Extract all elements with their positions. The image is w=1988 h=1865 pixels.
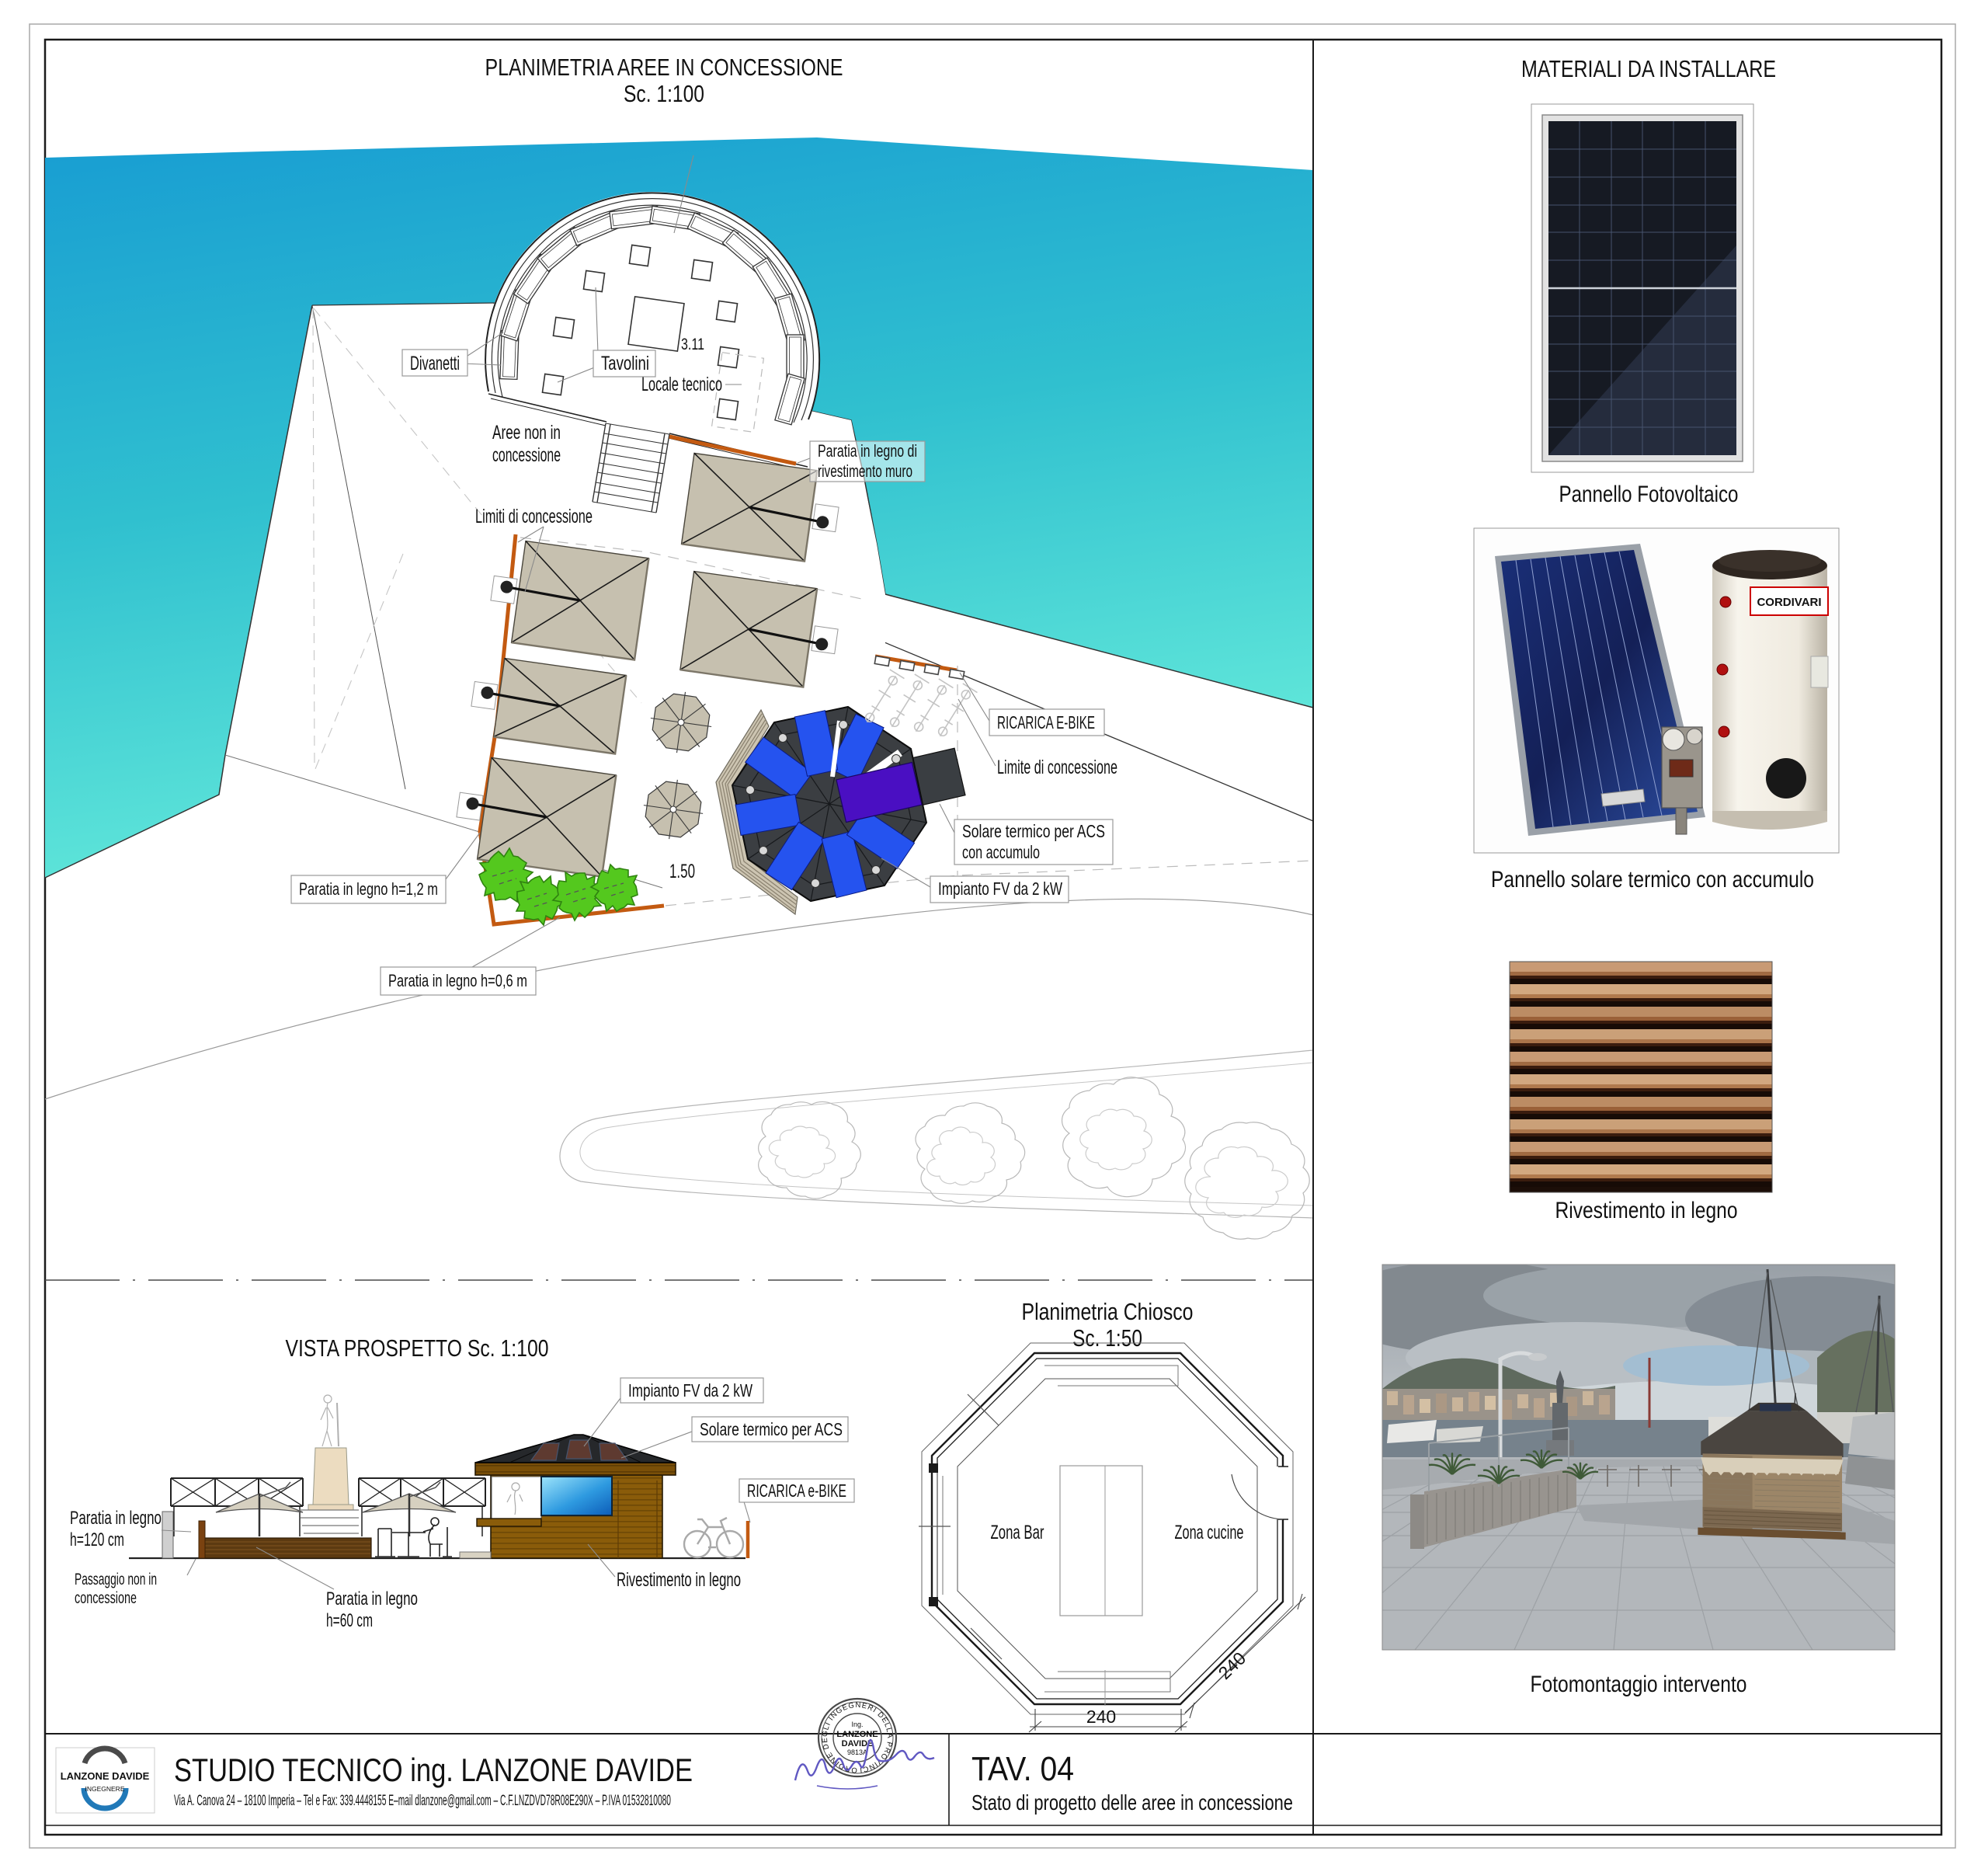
svg-text:concessione: concessione (75, 1589, 137, 1607)
svg-text:Ing.: Ing. (851, 1721, 863, 1728)
svg-text:rivestimento muro: rivestimento muro (818, 461, 912, 481)
svg-text:Rivestimento in legno: Rivestimento in legno (617, 1569, 741, 1591)
svg-text:h=60 cm: h=60 cm (326, 1610, 373, 1631)
svg-text:Rivestimento in legno: Rivestimento in legno (1555, 1198, 1738, 1223)
svg-text:h=120 cm: h=120 cm (70, 1529, 124, 1550)
svg-text:Sc. 1:100: Sc. 1:100 (624, 80, 704, 107)
svg-text:3.11: 3.11 (681, 336, 704, 353)
svg-text:PLANIMETRIA AREE IN CONCESSION: PLANIMETRIA AREE IN CONCESSIONE (485, 54, 843, 81)
svg-text:Stato di progetto delle aree i: Stato di progetto delle aree in concessi… (971, 1790, 1293, 1815)
svg-text:RICARICA E-BIKE: RICARICA E-BIKE (997, 712, 1095, 732)
svg-text:Sc. 1:50: Sc. 1:50 (1072, 1324, 1142, 1352)
svg-text:Planimetria Chiosco: Planimetria Chiosco (1022, 1298, 1194, 1325)
svg-text:STUDIO TECNICO ing. LANZONE DA: STUDIO TECNICO ing. LANZONE DAVIDE (174, 1752, 693, 1788)
svg-text:Divanetti: Divanetti (410, 353, 460, 374)
svg-text:Passaggio non in: Passaggio non in (75, 1571, 157, 1588)
svg-text:Solare termico per ACS: Solare termico per ACS (962, 821, 1105, 841)
svg-text:Paratia in legno h=0,6 m: Paratia in legno h=0,6 m (388, 971, 527, 990)
svg-text:Paratia in legno di: Paratia in legno di (818, 441, 917, 461)
svg-text:Zona Bar: Zona Bar (991, 1522, 1044, 1543)
svg-text:con accumulo: con accumulo (962, 842, 1040, 862)
svg-text:Zona cucine: Zona cucine (1175, 1522, 1244, 1543)
svg-text:INGEGNERE: INGEGNERE (85, 1785, 124, 1793)
svg-text:240: 240 (1086, 1707, 1116, 1727)
svg-text:VISTA PROSPETTO Sc. 1:100: VISTA PROSPETTO Sc. 1:100 (286, 1334, 549, 1362)
svg-text:RICARICA e-BIKE: RICARICA e-BIKE (747, 1481, 846, 1501)
svg-text:Impianto FV da 2 kW: Impianto FV da 2 kW (628, 1380, 752, 1400)
svg-text:Impianto FV da 2 kW: Impianto FV da 2 kW (938, 879, 1062, 899)
svg-text:Via A. Canova 24 – 18100 Imper: Via A. Canova 24 – 18100 Imperia – Tel e… (174, 1792, 671, 1809)
svg-text:1.50: 1.50 (669, 861, 695, 882)
svg-text:9813A: 9813A (847, 1748, 867, 1756)
svg-text:MATERIALI DA INSTALLARE: MATERIALI DA INSTALLARE (1521, 55, 1776, 82)
svg-text:Locale tecnico: Locale tecnico (641, 374, 722, 395)
svg-text:Pannello solare termico con ac: Pannello solare termico con accumulo (1491, 867, 1814, 892)
svg-text:Paratia in legno: Paratia in legno (70, 1508, 162, 1529)
svg-text:LANZONE DAVIDE: LANZONE DAVIDE (61, 1770, 150, 1782)
svg-text:CORDIVARI: CORDIVARI (1757, 596, 1821, 609)
svg-text:TAV. 04: TAV. 04 (971, 1750, 1074, 1788)
svg-text:Limiti di concessione: Limiti di concessione (475, 506, 593, 527)
svg-text:Tavolini: Tavolini (601, 353, 649, 374)
svg-text:Fotomontaggio intervento: Fotomontaggio intervento (1531, 1672, 1747, 1697)
svg-text:LANZONE: LANZONE (836, 1730, 878, 1739)
svg-text:Limite di concessione: Limite di concessione (997, 757, 1117, 778)
svg-text:Paratia in legno h=1,2 m: Paratia in legno h=1,2 m (299, 879, 438, 899)
svg-text:Pannello Fotovoltaico: Pannello Fotovoltaico (1559, 482, 1739, 507)
svg-text:Solare termico per ACS: Solare termico per ACS (700, 1419, 843, 1439)
svg-text:Aree non in: Aree non in (492, 422, 561, 444)
svg-text:concessione: concessione (492, 444, 561, 466)
svg-text:Paratia in legno: Paratia in legno (326, 1588, 418, 1609)
